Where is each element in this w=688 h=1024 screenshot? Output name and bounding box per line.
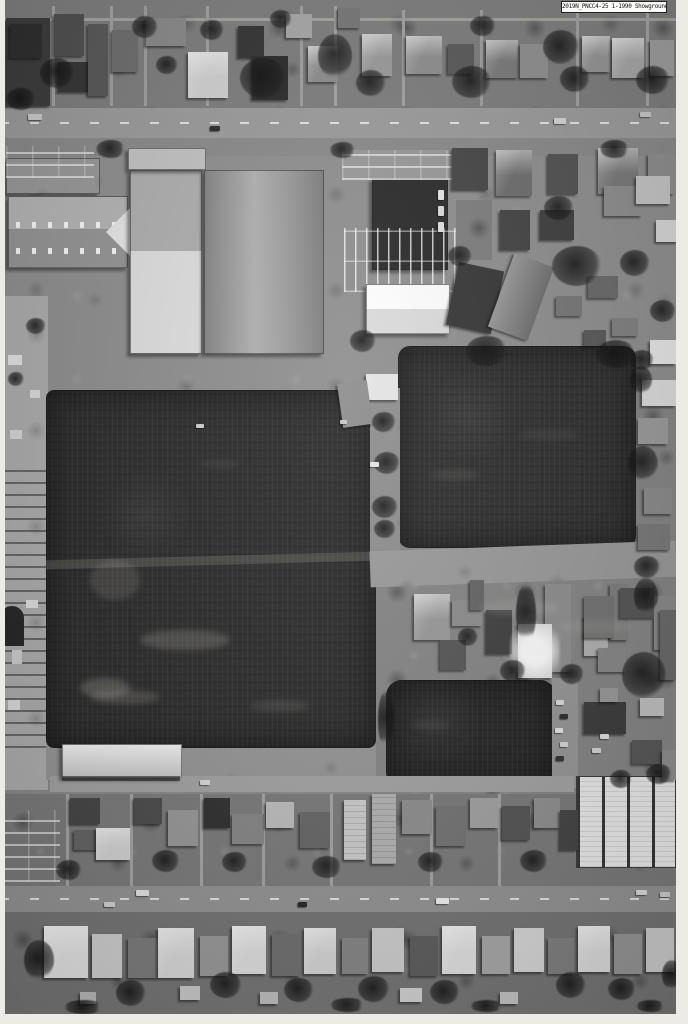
shed-east — [556, 296, 582, 316]
hall-east — [204, 170, 324, 354]
vehicle — [640, 112, 651, 117]
tree-canopy — [26, 318, 46, 334]
tree-canopy — [64, 1000, 104, 1014]
vehicle — [298, 902, 307, 907]
vehicle — [200, 780, 210, 785]
house-roof — [502, 806, 530, 840]
house-roof — [300, 812, 330, 848]
tree-canopy — [116, 980, 146, 1006]
house-roof — [54, 14, 84, 56]
house-roof — [338, 8, 360, 28]
house-east-col — [638, 524, 670, 550]
ground-smudge — [140, 630, 230, 650]
house-roof — [92, 934, 122, 978]
house-east-col — [644, 488, 672, 514]
house-roof — [112, 30, 138, 72]
vehicle — [554, 118, 566, 124]
house-roof — [88, 24, 108, 96]
tree-canopy — [630, 366, 652, 394]
tree-canopy — [156, 56, 178, 74]
tree-canopy — [430, 980, 460, 1004]
tree-canopy — [222, 852, 248, 872]
vehicle — [28, 114, 42, 120]
hall-mid — [130, 170, 202, 354]
driveway — [130, 794, 133, 886]
yard-hut — [10, 430, 22, 439]
house-roof — [514, 928, 544, 972]
tree-canopy — [372, 412, 396, 432]
ground-smudge — [250, 700, 310, 712]
house-roof — [560, 810, 578, 850]
vehicle — [210, 126, 220, 131]
tree-canopy — [628, 446, 658, 480]
house-roof — [614, 934, 642, 974]
house-roof — [584, 702, 626, 734]
house-roof — [500, 210, 530, 250]
tree-canopy — [466, 336, 508, 366]
tree-canopy — [378, 690, 394, 750]
ground-smudge — [90, 560, 140, 600]
tree-canopy — [358, 976, 390, 1002]
tree-canopy — [544, 196, 574, 220]
yard-hut — [8, 700, 20, 710]
tree-canopy — [418, 852, 444, 872]
white-shed — [344, 800, 366, 860]
house-roof — [640, 698, 664, 716]
house-roof — [266, 802, 294, 828]
tree-canopy — [356, 70, 386, 96]
hall-west-skylights — [16, 222, 116, 228]
house-roof — [482, 936, 510, 974]
lane-east-of-se-field — [552, 678, 578, 788]
field-northeast — [398, 346, 636, 548]
ground-smudge — [560, 620, 630, 634]
tree-canopy — [500, 660, 526, 682]
ground-smudge — [80, 678, 130, 698]
vehicle — [196, 424, 204, 428]
carpark-bays — [344, 228, 456, 292]
house-roof — [582, 36, 610, 72]
sheds-north-mid — [128, 148, 206, 170]
vehicle — [560, 714, 568, 719]
yard-hut — [30, 390, 40, 398]
garden-shed — [500, 992, 518, 1004]
shed-east — [612, 318, 638, 336]
house-roof — [410, 936, 438, 976]
tree-canopy — [600, 140, 630, 158]
tree-canopy — [650, 300, 676, 322]
vehicle — [136, 890, 149, 896]
house-roof — [496, 150, 532, 196]
house-roof — [96, 828, 130, 860]
house-roof — [238, 26, 264, 58]
house-roof — [134, 798, 162, 824]
small-white-shed-mid — [366, 374, 398, 400]
house-roof — [200, 936, 228, 976]
tree-canopy — [458, 628, 478, 646]
tree-canopy — [24, 940, 54, 980]
tree-canopy — [552, 246, 602, 286]
tree-canopy — [330, 998, 366, 1012]
vehicle — [556, 700, 564, 705]
garden-shed — [180, 986, 200, 1000]
house-roof — [232, 926, 266, 974]
garden-shed — [260, 992, 278, 1004]
house-roof — [486, 610, 512, 654]
house-roof — [656, 220, 678, 242]
tree-canopy — [240, 58, 286, 98]
tree-canopy — [622, 652, 666, 698]
tree-canopy — [330, 142, 356, 158]
vehicle — [636, 890, 647, 895]
tree-canopy — [56, 860, 82, 880]
aerial-photo-scan: 2019N_PNCC4-25 1-1990 Showgrounds_029408 — [0, 0, 688, 1024]
vehicle — [438, 190, 444, 200]
house-roof — [158, 928, 194, 978]
road-north-centerline — [0, 122, 676, 124]
carpark-north — [342, 150, 454, 180]
house-roof — [402, 800, 432, 834]
marquee-white — [366, 284, 450, 334]
vehicle — [560, 742, 568, 747]
tree-canopy — [284, 978, 314, 1002]
tree-canopy — [318, 34, 352, 78]
vehicle — [438, 222, 444, 232]
photo-reference-label: 2019N_PNCC4-25 1-1990 Showgrounds_029408 — [561, 1, 667, 13]
field-southeast — [386, 680, 556, 788]
vehicle — [592, 748, 601, 753]
house-roof — [414, 594, 450, 640]
grandstand-shadow — [62, 776, 180, 781]
aerial-photo — [0, 0, 688, 1024]
tree-canopy — [520, 850, 548, 872]
house-roof — [452, 148, 488, 190]
hall-west-skylights — [16, 248, 116, 254]
ground-smudge — [200, 460, 240, 468]
tree-canopy — [608, 978, 636, 1000]
house-roof — [70, 798, 100, 824]
tree-canopy — [210, 972, 242, 998]
vehicle — [438, 206, 444, 216]
house-roof — [470, 798, 498, 828]
house-roof — [600, 688, 618, 702]
photo-border-bottom — [0, 1014, 688, 1024]
house-roof — [548, 154, 578, 194]
house-roof — [168, 810, 198, 846]
house-roof — [636, 176, 670, 204]
white-shed — [372, 794, 396, 864]
house-roof — [548, 938, 574, 974]
ground-smudge — [520, 430, 580, 440]
tree-canopy — [543, 30, 579, 64]
driveway — [402, 10, 405, 106]
house-roof — [204, 798, 230, 828]
tree-canopy — [96, 140, 126, 158]
tree-canopy — [560, 66, 590, 92]
house-roof — [304, 928, 336, 974]
tree-canopy — [556, 972, 586, 998]
vehicle — [555, 728, 563, 733]
yard-hut — [12, 650, 22, 664]
tree-canopy — [620, 250, 650, 276]
vehicle — [436, 898, 449, 904]
yard-hut — [26, 600, 38, 608]
tree-canopy — [634, 578, 658, 614]
tree-canopy — [152, 850, 180, 872]
house-roof — [232, 814, 264, 844]
tree-canopy — [270, 10, 292, 28]
vehicle — [104, 902, 115, 907]
house-roof — [436, 806, 466, 846]
house-roof — [10, 24, 42, 58]
tree-canopy — [560, 664, 584, 684]
house-roof — [534, 798, 560, 828]
tree-canopy — [516, 584, 536, 644]
tree-canopy — [452, 66, 492, 98]
house-east-col — [638, 418, 668, 444]
tree-canopy — [374, 520, 396, 538]
vehicle — [556, 756, 564, 761]
ground-smudge — [430, 470, 480, 480]
garden-shed — [400, 988, 422, 1002]
tree-canopy — [448, 246, 472, 266]
tree-canopy — [8, 372, 24, 386]
house-roof — [632, 740, 662, 764]
yard-hut — [8, 355, 22, 365]
tree-canopy — [200, 20, 224, 40]
tree-canopy — [646, 764, 672, 784]
house-roof — [372, 928, 404, 972]
tree-canopy — [634, 556, 660, 578]
tree-canopy — [636, 1000, 666, 1012]
driveway — [498, 794, 501, 886]
tree-canopy — [6, 88, 36, 110]
vehicle — [340, 420, 347, 424]
tree-canopy — [610, 770, 632, 788]
tree-canopy — [636, 66, 670, 94]
photo-border-right — [676, 0, 688, 1024]
house-roof — [342, 938, 368, 974]
vehicle — [370, 462, 379, 467]
house-roof — [128, 938, 158, 978]
house-roof — [406, 36, 442, 74]
tree-canopy — [40, 58, 74, 88]
grandstand-white — [62, 744, 182, 778]
photo-border-left — [0, 0, 5, 1024]
tree-canopy — [350, 330, 376, 352]
tree-canopy — [470, 16, 496, 36]
tree-canopy — [470, 1000, 504, 1012]
tree-canopy — [372, 496, 398, 518]
house-roof — [188, 52, 228, 98]
parking-bays-sw — [2, 810, 60, 882]
driveway — [200, 794, 203, 886]
vehicle — [660, 892, 670, 897]
ground-smudge — [410, 720, 450, 730]
vehicle — [600, 734, 609, 739]
house-roof — [442, 926, 476, 974]
house-roof — [486, 40, 518, 78]
tree-canopy — [132, 16, 158, 38]
house-roof — [272, 934, 300, 976]
house-roof — [578, 926, 610, 972]
tree-canopy — [312, 856, 342, 878]
parking-bays-nw — [6, 146, 94, 178]
road-south-centerline — [0, 898, 676, 900]
factory-south — [576, 776, 676, 868]
